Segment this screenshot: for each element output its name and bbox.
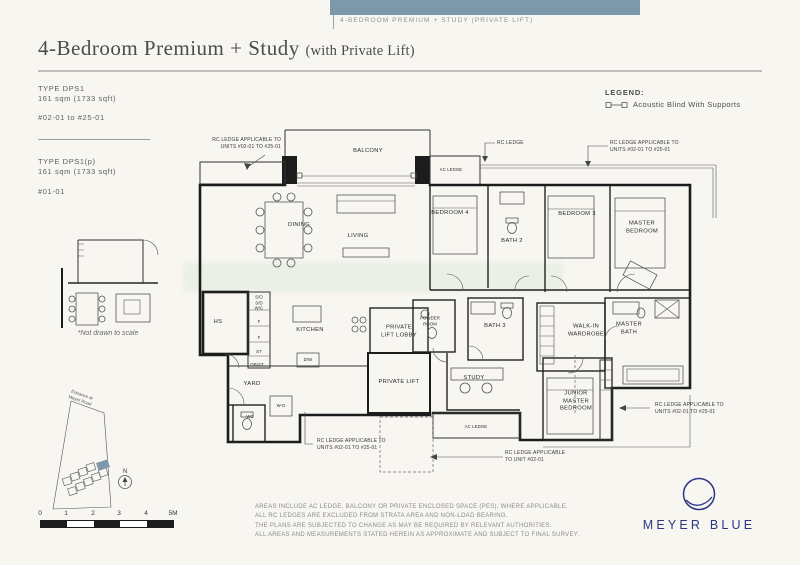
- banner-label: 4-BEDROOM PREMIUM + STUDY (PRIVATE LIFT): [340, 17, 533, 24]
- room-label-private-lift-lobby: PRIVATE LIFT LOBBY: [381, 324, 417, 339]
- room-label-bedroom3: BEDROOM 3: [558, 211, 596, 219]
- title-main: 4-Bedroom Premium + Study: [38, 36, 300, 60]
- scale-tick-4: 4: [144, 510, 148, 517]
- acoustic-blind-icon: [605, 101, 629, 109]
- label-store: ST: [256, 349, 262, 355]
- room-label-wc: WC: [246, 414, 253, 420]
- legend-row: Acoustic Blind With Supports: [605, 100, 741, 109]
- room-label-master-bedroom: MASTER BEDROOM: [626, 220, 658, 235]
- unit-type-2-units: #01-01: [38, 187, 65, 196]
- thumbnail-scale-note: *Not drawn to scale: [48, 330, 168, 337]
- room-label-balcony: BALCONY: [353, 148, 383, 156]
- label-oven-steamer: OB/ST: [250, 362, 263, 368]
- room-label-ac-ledge-bottom: AC LEDGE: [465, 424, 488, 430]
- label-washer-dryer: W-D: [277, 403, 286, 409]
- annotation-rc-ledge-bottom-left: RC LEDGE APPLICABLE TO UNITS #02-01 TO #…: [317, 438, 386, 452]
- unit-type-tab[interactable]: [330, 0, 640, 15]
- room-label-private-lift: PRIVATE LIFT: [378, 379, 419, 387]
- annotation-rc-ledge-top-right: RC LEDGE APPLICABLE TO UNITS #02-01 TO #…: [610, 140, 679, 154]
- room-label-living: LIVING: [348, 233, 369, 241]
- unit-type-1-units: #02-01 to #25-01: [38, 113, 105, 122]
- legend-item-label: Acoustic Blind With Supports: [633, 100, 741, 109]
- annotation-rc-ledge-right: RC LEDGE APPLICABLE TO UNITS #02-01 TO #…: [655, 402, 724, 416]
- room-label-ac-ledge-top: AC LEDGE: [440, 167, 463, 173]
- scale-bar: [40, 520, 174, 528]
- room-label-bath2: BATH 2: [501, 238, 523, 246]
- page-title: 4-Bedroom Premium + Study (with Private …: [38, 36, 415, 61]
- room-label-hs: HS: [214, 319, 223, 327]
- label-fridge-2: F: [258, 335, 261, 341]
- highlighted-building: [96, 459, 110, 470]
- room-label-master-bath: MASTER BATH: [616, 321, 642, 336]
- label-fridge-1: F: [258, 319, 261, 325]
- annotation-rc-ledge-top-left: RC LEDGE APPLICABLE TO UNITS #02-01 TO #…: [205, 137, 281, 151]
- disclaimer-line-3: THE PLANS ARE SUBJECTED TO CHANGE AS MAY…: [255, 522, 579, 531]
- disclaimer: AREAS INCLUDE AC LEDGE, BALCONY OR PRIVA…: [255, 503, 579, 540]
- annotation-rc-ledge-top-mid: RC LEDGE: [497, 140, 524, 147]
- site-plan: N: [45, 392, 165, 524]
- north-label: N: [123, 469, 127, 475]
- room-label-dining: DINING: [288, 222, 310, 230]
- room-label-junior-master: JUNIOR MASTER BEDROOM: [560, 391, 592, 414]
- scale-tick-0: 0: [38, 510, 42, 517]
- unit-info-divider: [38, 139, 150, 140]
- label-cabinet-stack: S/O S/D W/C: [255, 295, 264, 312]
- meyer-blue-logo-icon: [675, 472, 723, 518]
- thumbnail-plan: [48, 228, 168, 333]
- room-label-study: STUDY: [463, 375, 484, 383]
- unit-type-2-area: 161 sqm (1733 sqft): [38, 167, 116, 176]
- annotation-rc-ledge-bottom-mid: RC LEDGE APPLICABLE TO UNIT #02-01: [505, 450, 565, 464]
- meyer-blue-logo-text: MEYER BLUE: [643, 518, 756, 532]
- room-label-kitchen: KITCHEN: [296, 327, 324, 335]
- title-divider: [38, 70, 762, 72]
- scale-tick-2: 2: [91, 510, 95, 517]
- banner-tick: [333, 15, 334, 29]
- room-label-bath3: BATH 3: [484, 323, 506, 331]
- title-suffix: (with Private Lift): [306, 43, 415, 59]
- disclaimer-line-1: AREAS INCLUDE AC LEDGE, BALCONY OR PRIVA…: [255, 503, 579, 512]
- unit-type-1-area: 161 sqm (1733 sqft): [38, 94, 116, 103]
- scale-tick-5: 5M: [168, 510, 177, 517]
- label-dishwasher: D/W: [304, 357, 313, 363]
- scale-tick-3: 3: [117, 510, 121, 517]
- room-label-yard: YARD: [244, 381, 261, 389]
- room-label-walk-in-wardrobe: WALK-IN WARDROBE: [568, 323, 604, 338]
- legend-heading: LEGEND:: [605, 88, 644, 97]
- disclaimer-line-2: ALL RC LEDGES ARE EXCLUDED FROM STRATA A…: [255, 512, 579, 521]
- unit-type-2-name: TYPE DPS1(p): [38, 157, 96, 166]
- floorplan-page: 4-BEDROOM PREMIUM + STUDY (PRIVATE LIFT)…: [0, 0, 800, 565]
- room-label-powder-room: POWDER ROOM: [420, 315, 440, 326]
- room-label-bedroom4: BEDROOM 4: [431, 210, 469, 218]
- unit-type-1-name: TYPE DPS1: [38, 84, 85, 93]
- scale-tick-1: 1: [64, 510, 68, 517]
- disclaimer-line-4: ALL AREAS AND MEASUREMENTS STATED HEREIN…: [255, 531, 579, 540]
